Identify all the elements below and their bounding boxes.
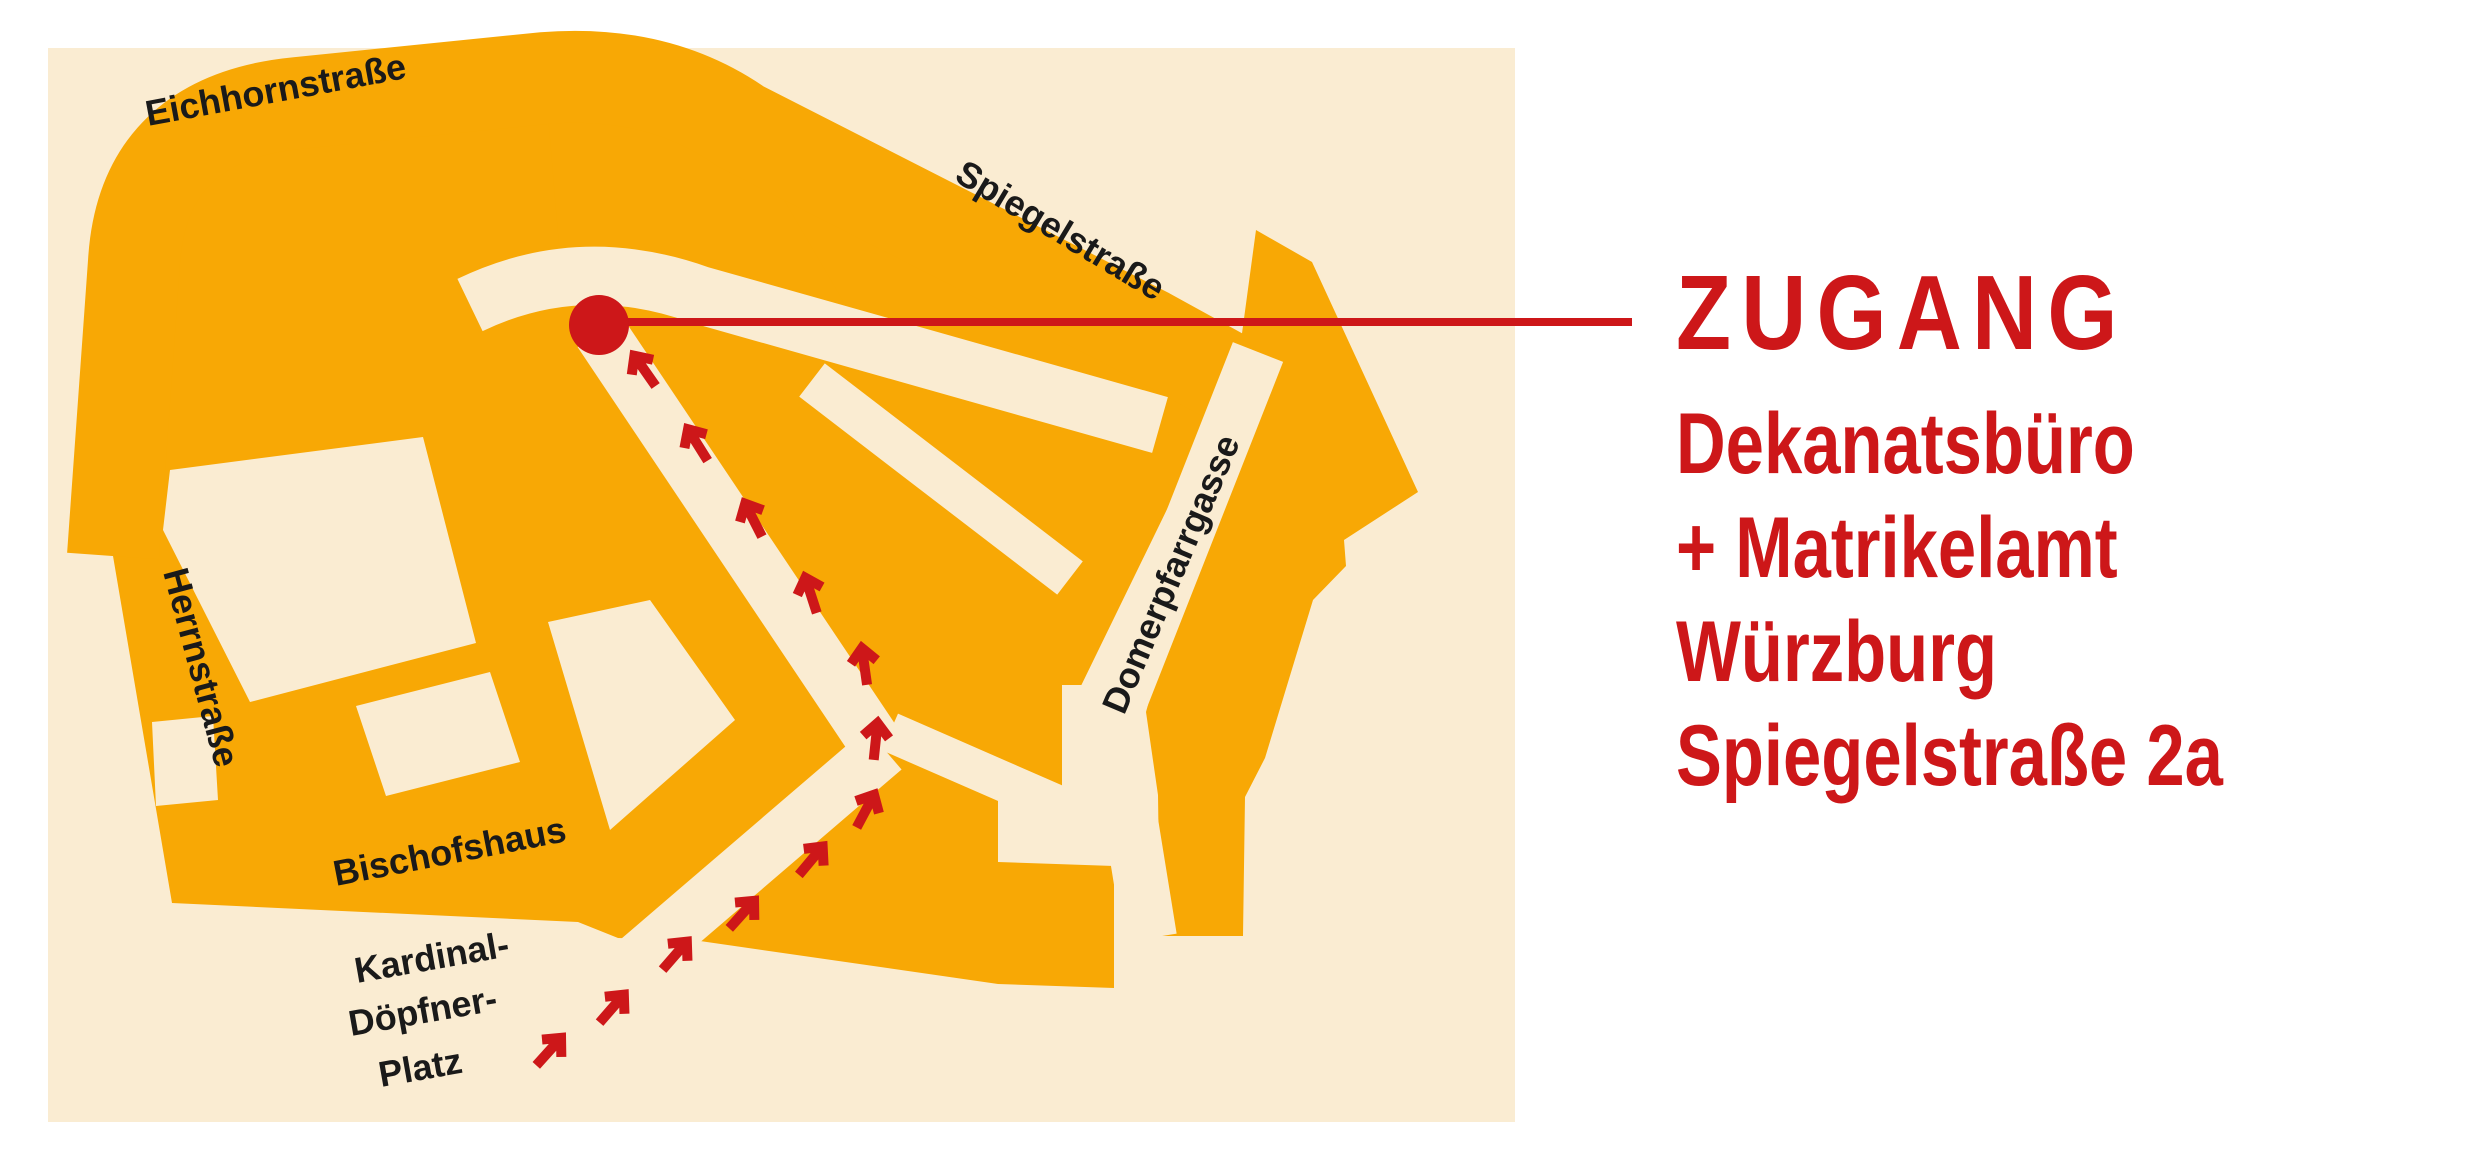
callout-address: Dekanatsbüro + Matrikelamt Würzburg Spie… xyxy=(1676,392,2360,808)
callout-text-block: ZUGANG Dekanatsbüro + Matrikelamt Würzbu… xyxy=(1676,258,2360,808)
street-gap-lowerblock xyxy=(998,798,1114,866)
callout-line-1: Dekanatsbüro xyxy=(1676,392,2223,496)
site-plan: Eichhornstraße Spiegelstraße Herrnstraße… xyxy=(0,0,2480,1169)
entrance-dot xyxy=(569,295,629,355)
callout-line-2: + Matrikelamt xyxy=(1676,496,2223,600)
callout-title: ZUGANG xyxy=(1676,258,2257,368)
callout-line-3: Würzburg xyxy=(1676,600,2223,704)
callout-line-4: Spiegelstraße 2a xyxy=(1676,704,2223,808)
